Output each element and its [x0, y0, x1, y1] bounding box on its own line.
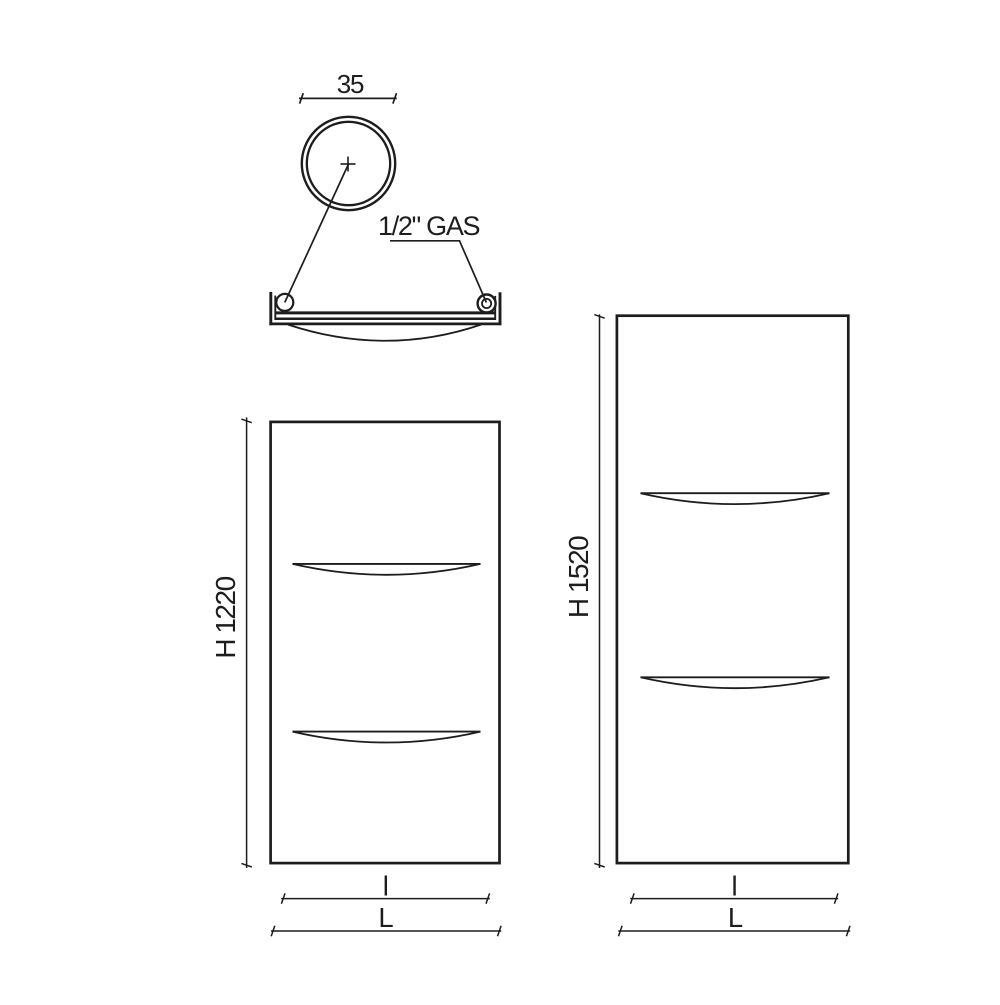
svg-text:35: 35 [337, 69, 364, 99]
svg-text:l: l [383, 871, 389, 902]
svg-text:L: L [378, 902, 393, 933]
svg-text:H 1520: H 1520 [563, 536, 594, 618]
svg-text:1/2" GAS: 1/2" GAS [378, 211, 480, 241]
svg-text:H 1220: H 1220 [210, 576, 241, 658]
svg-text:L: L [728, 902, 743, 933]
svg-text:l: l [731, 871, 737, 902]
